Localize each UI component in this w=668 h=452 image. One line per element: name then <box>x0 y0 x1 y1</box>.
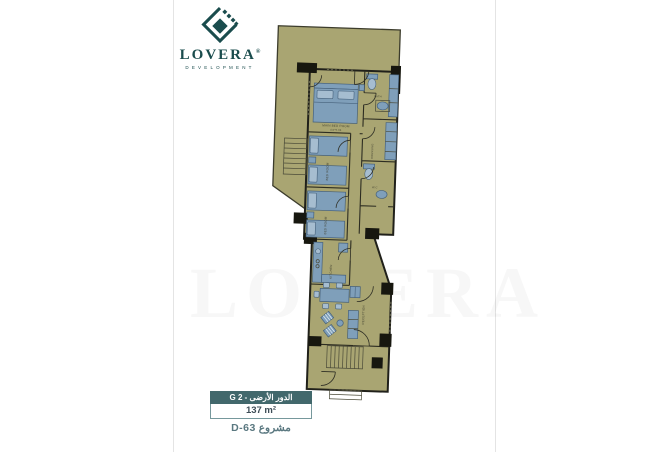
area-label: 137 m² <box>210 404 312 419</box>
nightstand <box>307 212 314 218</box>
kitchen-sink <box>315 249 320 254</box>
chair <box>336 283 342 288</box>
chair <box>314 291 319 297</box>
kitchen-label: KITCHEN <box>329 264 334 279</box>
bath-label: BATH <box>374 94 382 98</box>
bedroom-3-label: BED ROOM <box>323 216 328 234</box>
main-bedroom-dims: 4.0*5.05 <box>330 128 342 132</box>
reception-label: RECEPTION <box>361 305 366 324</box>
wc-label: W.C <box>372 185 378 189</box>
nightstand <box>309 157 316 163</box>
nightstand <box>359 85 364 91</box>
chair <box>336 304 342 309</box>
dressing-label: DRESSING <box>370 143 375 158</box>
shower <box>388 75 398 117</box>
floor-plan: MAIN BED ROOM 4.0*5.05 BED ROOM BED ROOM… <box>0 0 668 452</box>
dining-table <box>320 288 349 302</box>
floor-label-box: الدور الأرضى - G 2 137 m² <box>210 391 312 419</box>
bedroom-2-label: BED ROOM <box>325 162 330 180</box>
dressing-wardrobe <box>385 123 397 160</box>
project-label: مشروع D-63 <box>200 422 322 434</box>
kitchen-counter <box>312 242 322 282</box>
sofa <box>348 310 359 338</box>
toilet <box>368 78 376 89</box>
floor-name-label: الدور الأرضى - G 2 <box>210 391 312 404</box>
chair <box>323 282 329 287</box>
brochure-page: LOVERA LOVERA® DEVELOPMENT <box>0 0 668 452</box>
chair <box>323 303 329 308</box>
coffee-table <box>337 320 344 327</box>
sink <box>376 190 387 198</box>
master-bed <box>313 83 364 124</box>
sink <box>377 102 388 110</box>
